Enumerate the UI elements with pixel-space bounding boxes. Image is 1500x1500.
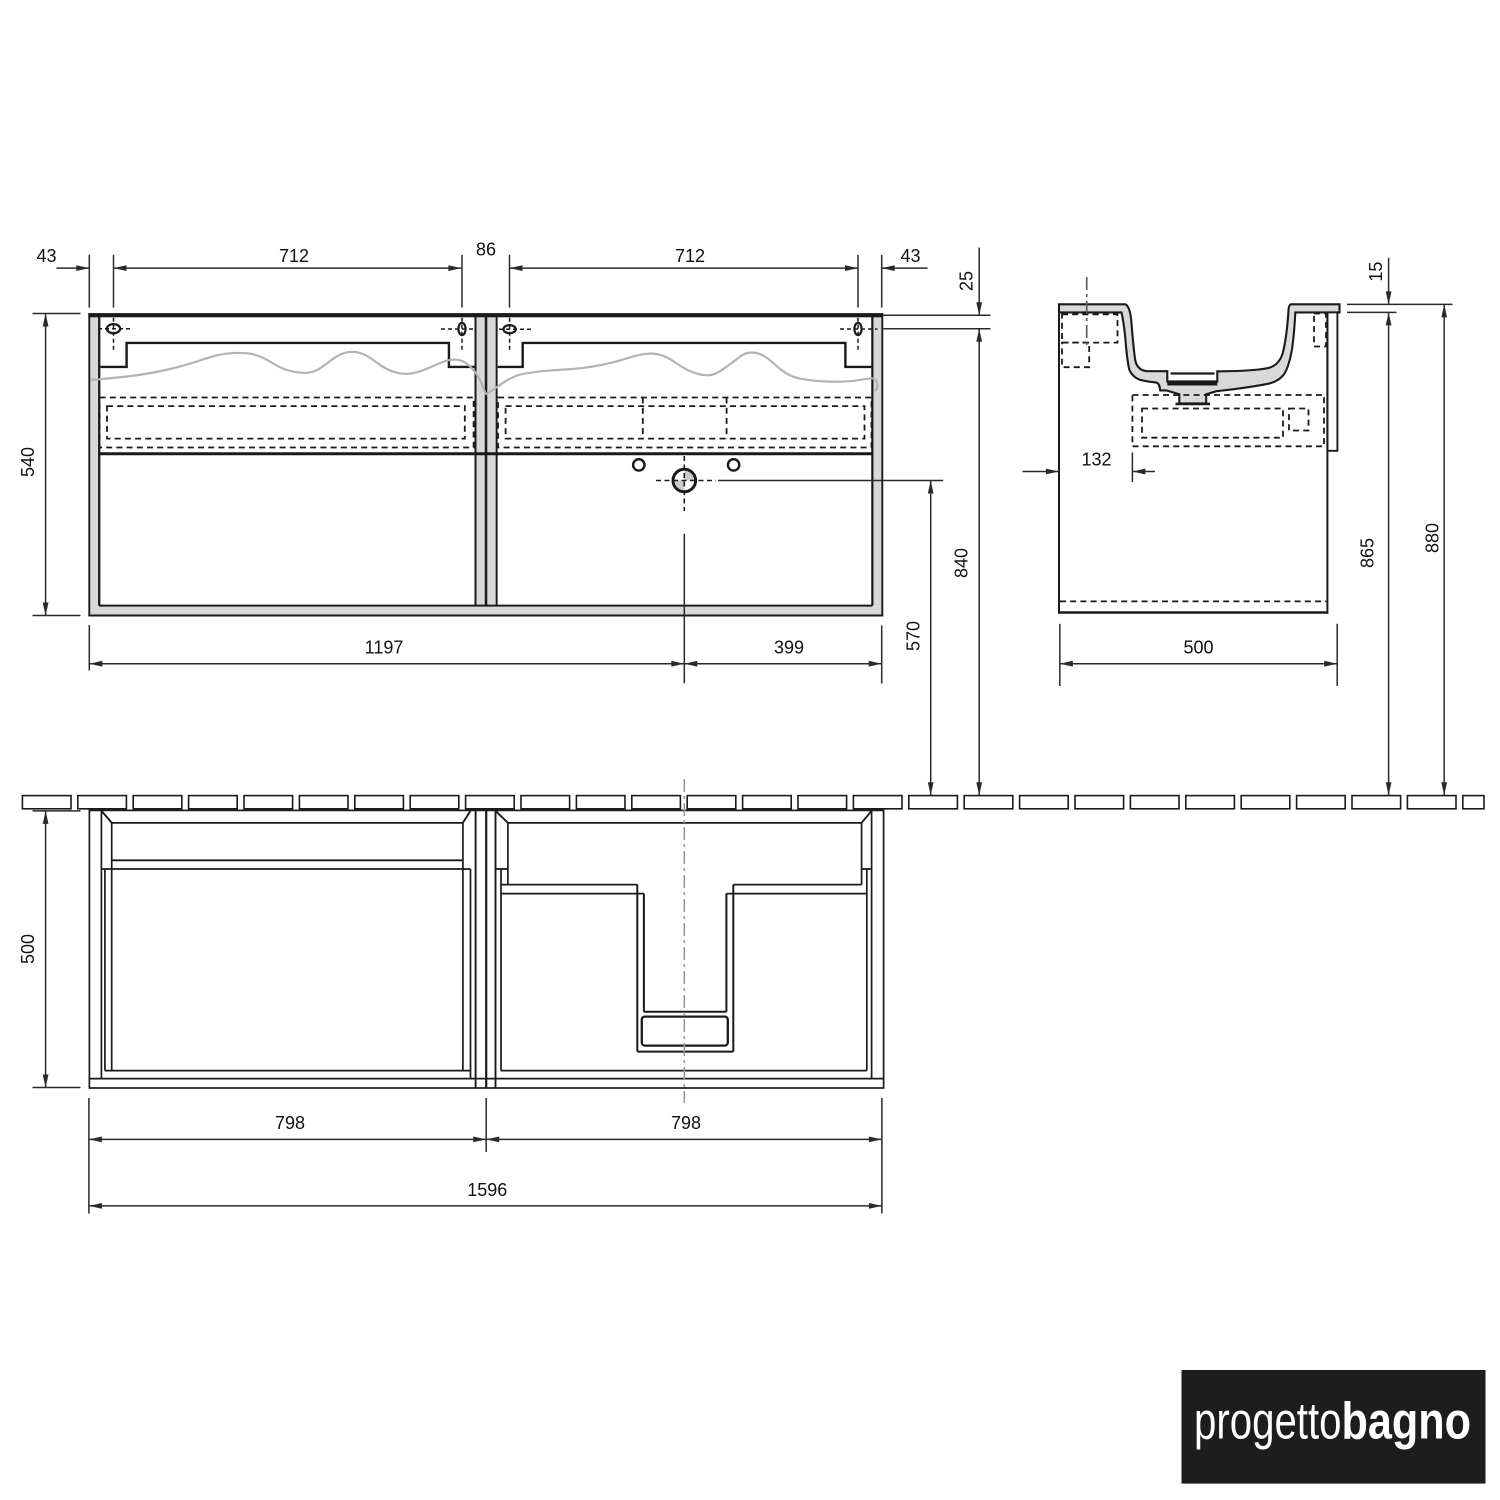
svg-text:15: 15 <box>1366 262 1386 282</box>
svg-text:840: 840 <box>951 548 971 578</box>
svg-text:132: 132 <box>1081 449 1111 469</box>
svg-text:880: 880 <box>1422 523 1442 553</box>
svg-text:86: 86 <box>476 240 496 260</box>
svg-text:25: 25 <box>956 271 976 291</box>
svg-text:712: 712 <box>279 246 309 266</box>
svg-text:bagno: bagno <box>1342 1393 1472 1451</box>
svg-text:1596: 1596 <box>467 1180 507 1200</box>
svg-text:399: 399 <box>774 638 804 658</box>
svg-text:progetto: progetto <box>1194 1393 1342 1451</box>
svg-text:798: 798 <box>671 1113 701 1133</box>
svg-text:570: 570 <box>904 621 924 651</box>
svg-text:865: 865 <box>1358 538 1378 568</box>
svg-text:43: 43 <box>36 246 56 266</box>
svg-text:500: 500 <box>1183 638 1213 658</box>
svg-text:1197: 1197 <box>365 638 404 658</box>
svg-text:798: 798 <box>275 1113 305 1133</box>
svg-text:500: 500 <box>18 934 38 964</box>
svg-text:540: 540 <box>18 447 38 477</box>
svg-text:43: 43 <box>900 246 920 266</box>
svg-text:712: 712 <box>675 246 705 266</box>
